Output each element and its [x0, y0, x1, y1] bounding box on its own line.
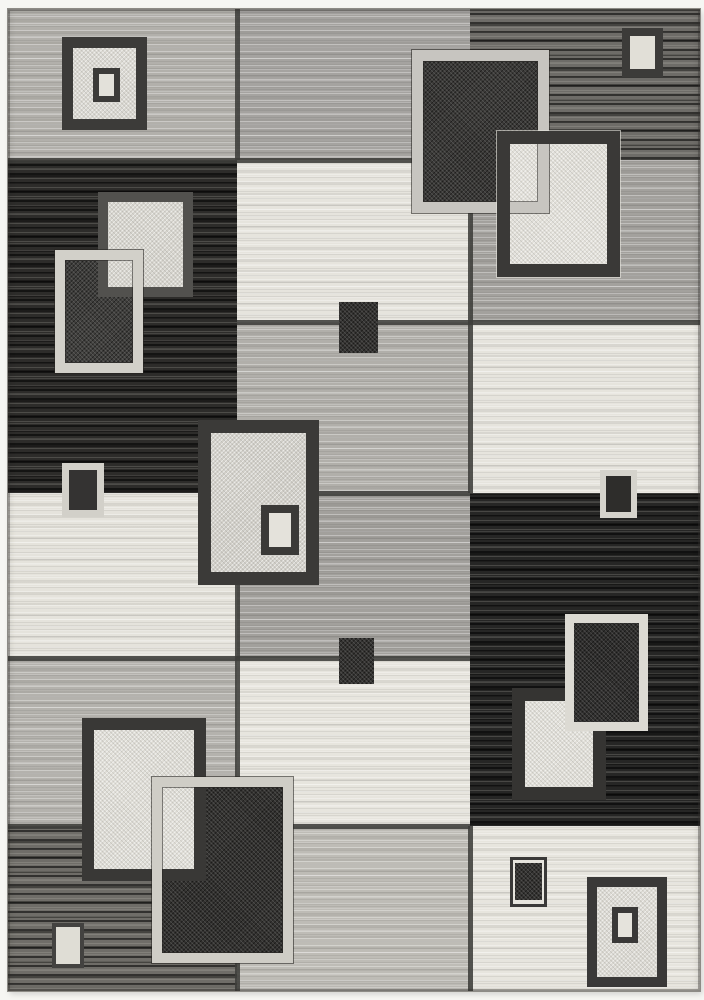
square-bottom-right-inner — [612, 907, 638, 943]
square-center-inner — [261, 505, 299, 555]
square-bottom-left-dark-frame — [152, 777, 293, 963]
page-background — [0, 0, 704, 1000]
square-small-top-right — [622, 28, 663, 77]
rug-image — [8, 9, 700, 991]
gridline-v-470-bottom — [468, 826, 473, 991]
square-small-bottom-left — [52, 923, 84, 968]
square-small-right-mid — [600, 470, 637, 518]
square-right-black-dark-frame — [565, 614, 648, 731]
square-left-black-b-frame — [55, 250, 143, 373]
square-small-mid-lower — [339, 638, 374, 684]
patch-right-white-middle — [470, 322, 700, 493]
square-small-left-mid — [62, 463, 104, 517]
square-center-outer — [198, 420, 319, 585]
gridline-v-237-top — [235, 9, 240, 160]
square-top-left-inner — [93, 68, 120, 102]
square-small-mid-upper — [339, 302, 378, 353]
square-top-right-b-frame — [497, 131, 620, 277]
square-small-bottom-mid-fill — [515, 863, 542, 900]
